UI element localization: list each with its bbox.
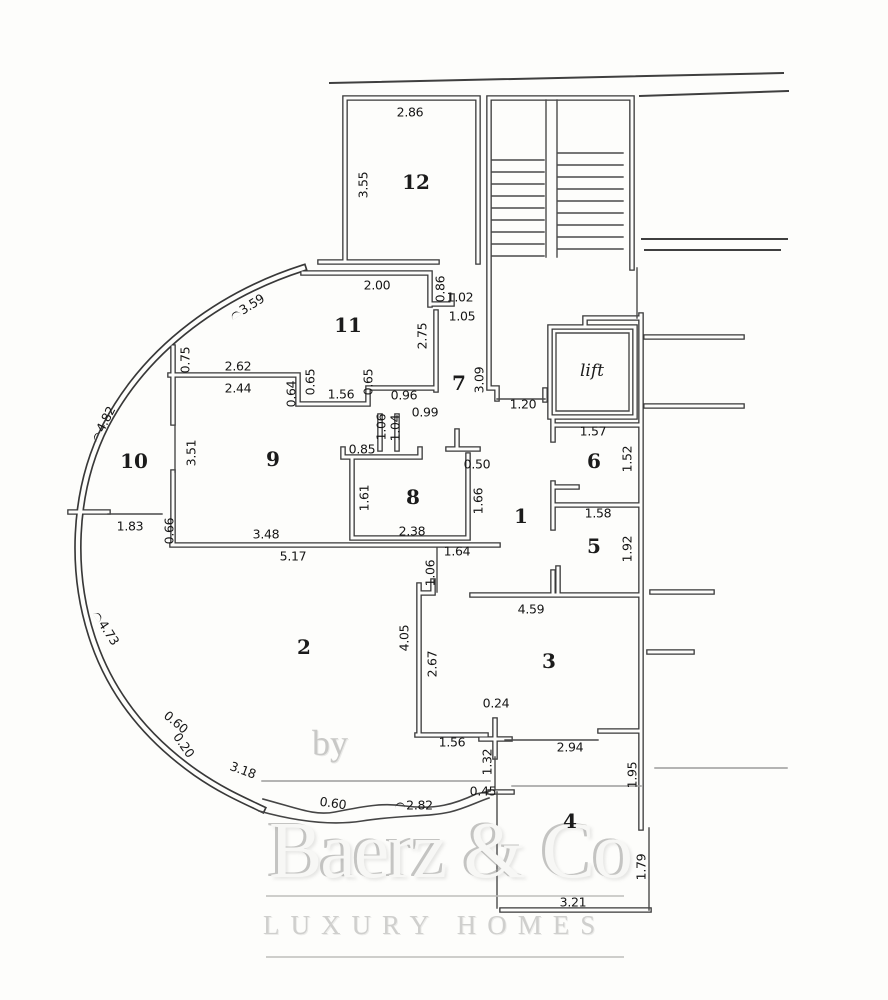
dimension-label: 0.60 [161,708,191,737]
dimension-label: 0.24 [483,696,510,711]
arc-length-icon [395,802,405,808]
dimension-label: 1.56 [439,735,466,750]
dimension-label: 1.32 [480,749,495,776]
dimension-label: 1.64 [444,544,471,559]
dimension-label: 0.75 [178,347,193,374]
arc-length-icon [92,430,102,442]
dimension-label: 3.48 [253,527,280,542]
dimension-label: 1.04 [388,415,403,442]
dimension-label: 2.62 [225,359,252,374]
plan-labels: 2.863.552.000.861.021.052.753.590.752.62… [0,0,888,1000]
dimension-label: 2.82 [395,798,433,813]
dimension-label: 0.99 [412,405,439,420]
dimension-label: 1.06 [423,560,438,587]
dimension-label: 0.64 [284,381,299,408]
dimension-label: 1.61 [357,485,372,512]
dimension-label: 1.95 [625,762,640,789]
dimension-label: 1.20 [510,397,537,412]
dimension-label: 0.50 [464,457,491,472]
dimension-label: 1.66 [471,488,486,515]
dimension-label: 1.58 [585,506,612,521]
room-label: 1 [514,504,528,528]
dimension-label: 1.56 [328,387,355,402]
dimension-label: 3.59 [227,291,267,324]
dimension-label: 1.02 [447,290,474,305]
dimension-label: 2.67 [425,651,440,678]
arc-length-icon [93,611,103,623]
dimension-label: 2.75 [415,323,430,350]
dimension-label: 1.52 [620,446,635,473]
dimension-label: 1.05 [449,309,476,324]
dimension-label: 2.00 [364,278,391,293]
dimension-label: 4.59 [518,602,545,617]
dimension-label: 0.65 [303,369,318,396]
dimension-label: 1.92 [620,536,635,563]
dimension-label: 2.86 [397,105,424,120]
room-label: lift [580,361,604,381]
dimension-label: 2.94 [557,740,584,755]
room-label: 8 [406,485,420,509]
room-label: 2 [297,635,311,659]
dimension-label: 0.65 [361,369,376,396]
dimension-label: 2.38 [399,524,426,539]
dimension-label: 5.17 [280,549,307,564]
dimension-label: 3.21 [560,895,587,910]
dimension-label: 4.82 [88,404,118,444]
dimension-label: 1.79 [634,854,649,881]
dimension-label: 4.05 [397,625,412,652]
floorplan-page: by Baerz & Co LUXURY HOMES 2.863.552.000… [0,0,888,1000]
dimension-label: 0.45 [470,784,497,799]
dimension-label: 3.09 [472,367,487,394]
room-label: 10 [120,449,148,473]
room-label: 4 [563,809,577,833]
dimension-label: 0.60 [319,794,347,813]
dimension-label: 1.06 [374,414,389,441]
dimension-label: 0.66 [162,518,177,545]
room-label: 12 [402,170,430,194]
dimension-label: 4.73 [89,608,122,648]
room-label: 9 [266,447,280,471]
dimension-label: 3.18 [228,758,258,781]
dimension-label: 1.83 [117,519,144,534]
dimension-label: 0.20 [170,730,198,760]
dimension-label: 3.55 [356,172,371,199]
room-label: 5 [587,534,601,558]
dimension-label: 1.57 [580,424,607,439]
dimension-label: 0.96 [391,388,418,403]
room-label: 6 [587,449,601,473]
room-label: 3 [542,649,556,673]
dimension-label: 3.51 [184,440,199,467]
room-label: 7 [452,371,466,395]
dimension-label: 0.85 [349,442,376,457]
dimension-label: 0.86 [433,276,448,303]
dimension-label: 2.44 [225,381,252,396]
room-label: 11 [334,313,362,337]
arc-length-icon [229,309,241,319]
